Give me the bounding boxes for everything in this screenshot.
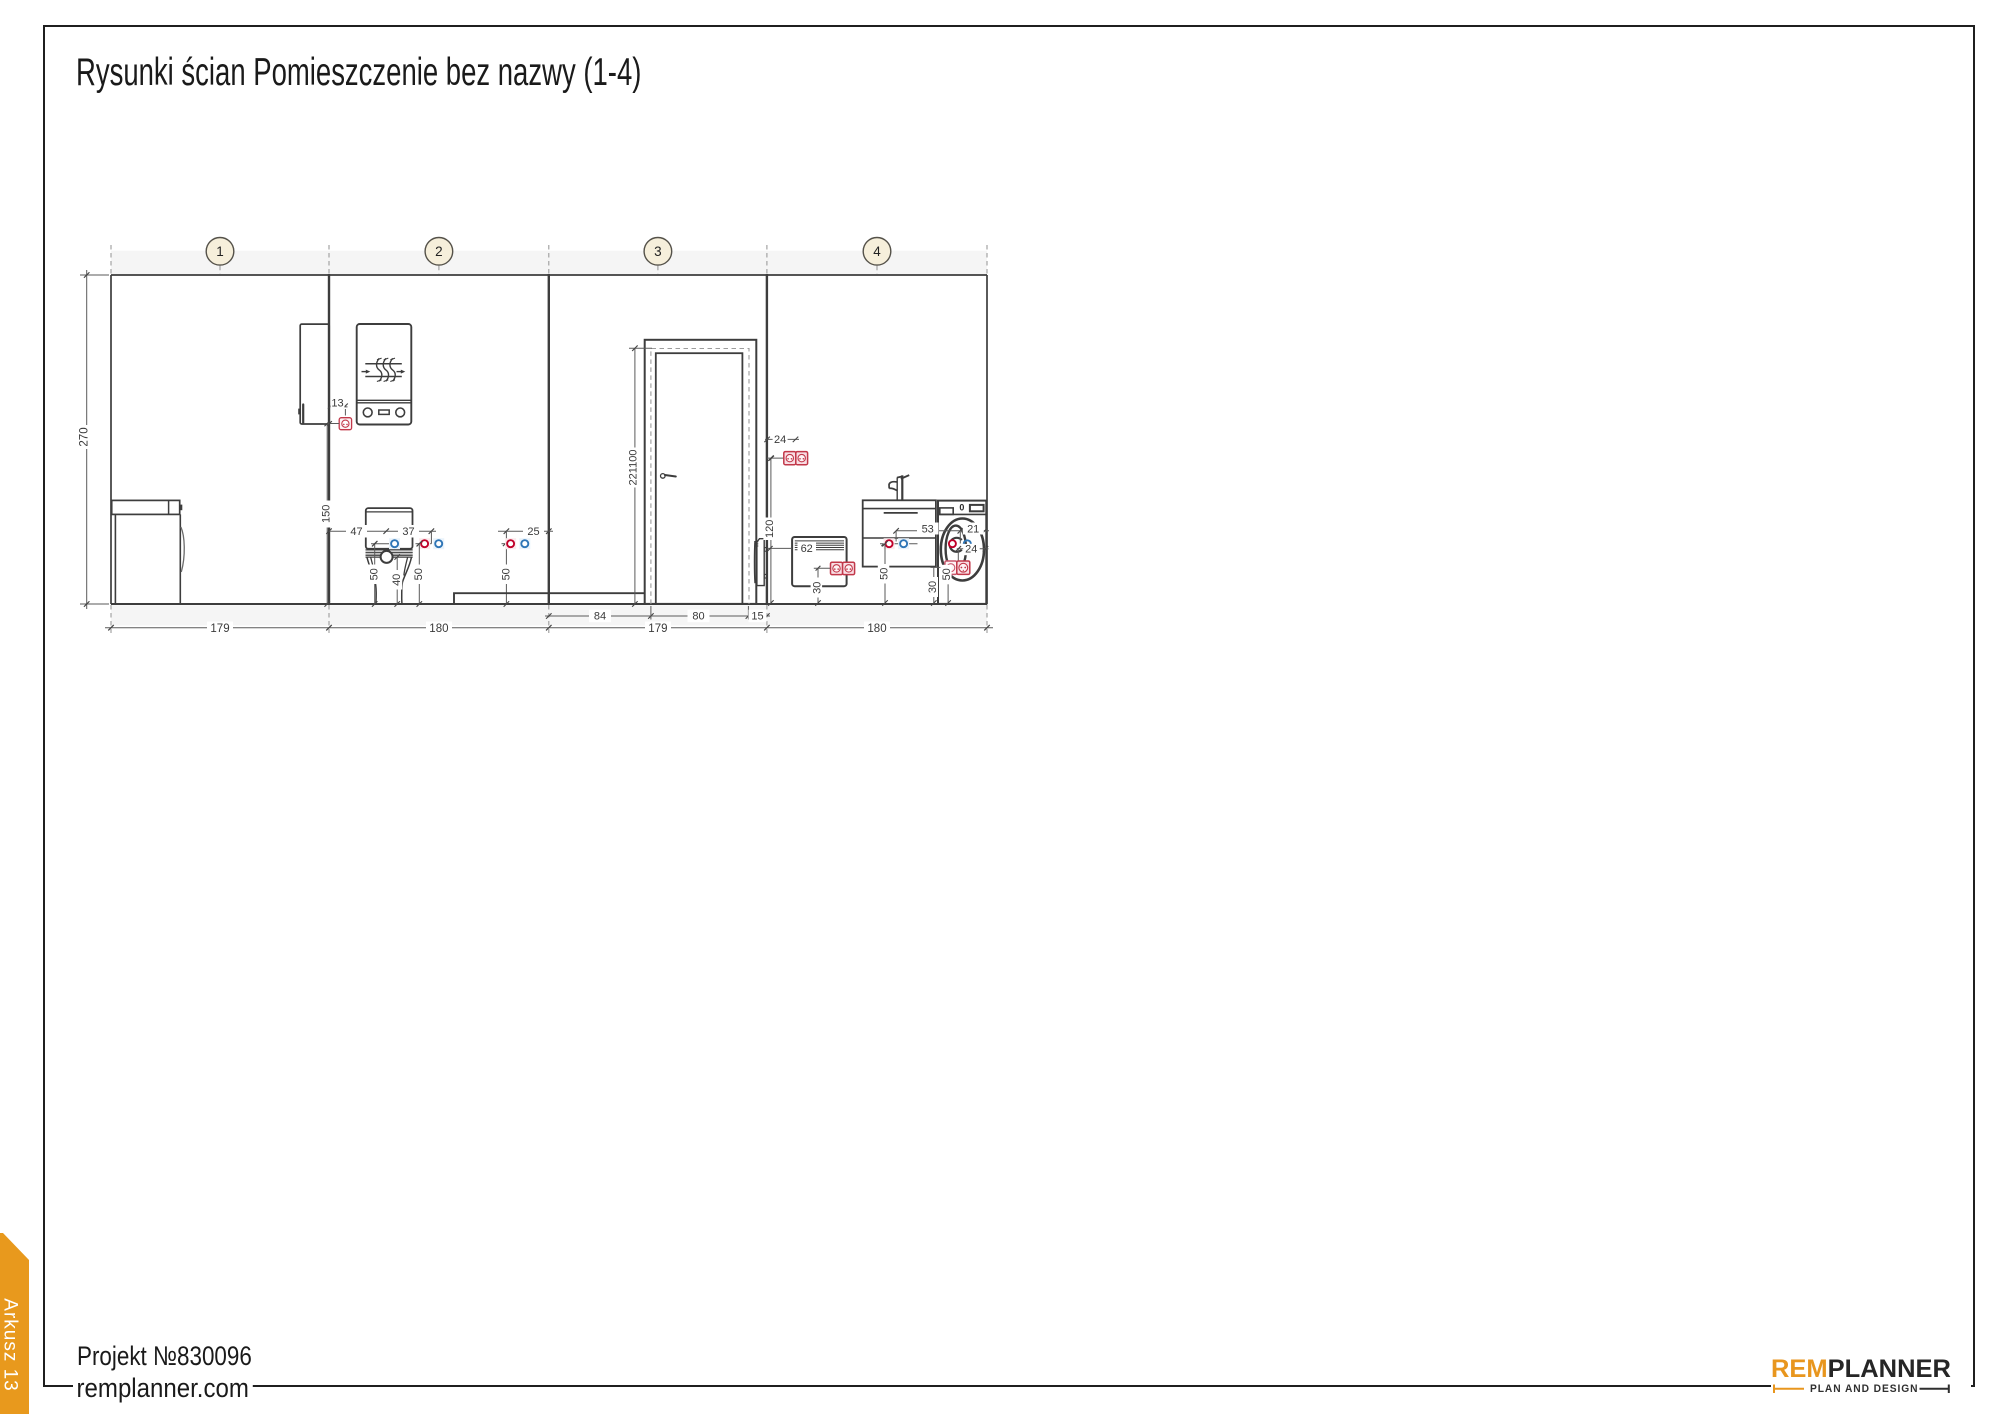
svg-text:37: 37	[402, 526, 414, 538]
svg-text:84: 84	[594, 611, 606, 623]
svg-text:30: 30	[927, 581, 939, 593]
svg-text:15: 15	[751, 611, 763, 623]
svg-text:21: 21	[967, 524, 979, 536]
svg-text:47: 47	[350, 526, 362, 538]
svg-text:4: 4	[873, 244, 881, 259]
svg-text:53: 53	[922, 524, 934, 536]
svg-text:40: 40	[391, 574, 403, 586]
svg-text:1: 1	[216, 244, 224, 259]
svg-text:2: 2	[435, 244, 443, 259]
svg-text:3: 3	[654, 244, 662, 259]
svg-text:270: 270	[79, 427, 91, 446]
svg-text:180: 180	[429, 623, 448, 635]
svg-text:24: 24	[965, 544, 977, 556]
svg-text:30: 30	[811, 582, 823, 594]
svg-text:50: 50	[368, 568, 380, 580]
svg-text:80: 80	[692, 611, 704, 623]
svg-text:50: 50	[879, 568, 891, 580]
svg-text:179: 179	[210, 623, 229, 635]
svg-text:179: 179	[648, 623, 667, 635]
svg-text:150: 150	[321, 505, 333, 523]
svg-text:120: 120	[764, 520, 776, 538]
svg-text:50: 50	[941, 568, 953, 580]
svg-text:50: 50	[501, 568, 513, 580]
svg-text:221100: 221100	[628, 450, 640, 486]
svg-text:0: 0	[959, 503, 964, 513]
svg-text:62: 62	[801, 543, 813, 555]
svg-text:25: 25	[527, 526, 539, 538]
svg-text:24: 24	[774, 434, 786, 446]
svg-text:13: 13	[331, 397, 343, 409]
svg-text:180: 180	[867, 623, 886, 635]
svg-text:50: 50	[413, 568, 425, 580]
